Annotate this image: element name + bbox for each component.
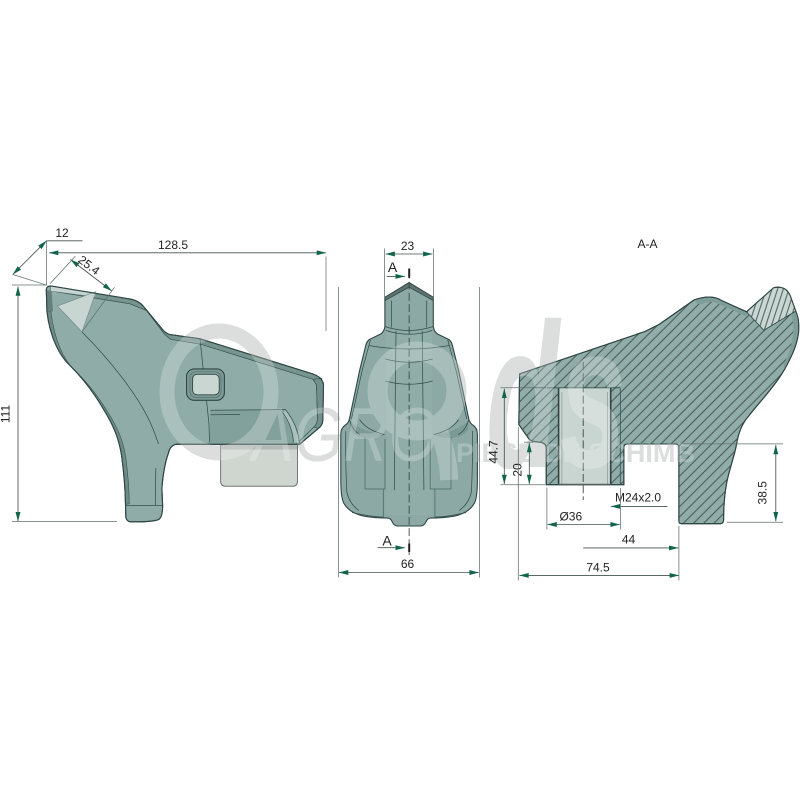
svg-text:12: 12 xyxy=(55,226,69,240)
svg-text:A-A: A-A xyxy=(637,237,657,251)
svg-text:44.7: 44.7 xyxy=(487,440,501,464)
svg-text:A: A xyxy=(382,533,392,549)
svg-text:74.5: 74.5 xyxy=(586,561,610,575)
svg-text:A: A xyxy=(388,259,398,275)
svg-text:Ø36: Ø36 xyxy=(559,510,582,524)
svg-text:111: 111 xyxy=(0,405,13,424)
svg-text:M24x2.0: M24x2.0 xyxy=(615,491,661,505)
svg-text:128.5: 128.5 xyxy=(158,238,188,252)
svg-text:23: 23 xyxy=(401,239,415,253)
svg-text:38.5: 38.5 xyxy=(756,481,770,505)
svg-text:44: 44 xyxy=(622,533,636,547)
svg-text:ds: ds xyxy=(486,281,626,511)
svg-text:20: 20 xyxy=(511,463,525,477)
svg-text:66: 66 xyxy=(401,557,415,571)
